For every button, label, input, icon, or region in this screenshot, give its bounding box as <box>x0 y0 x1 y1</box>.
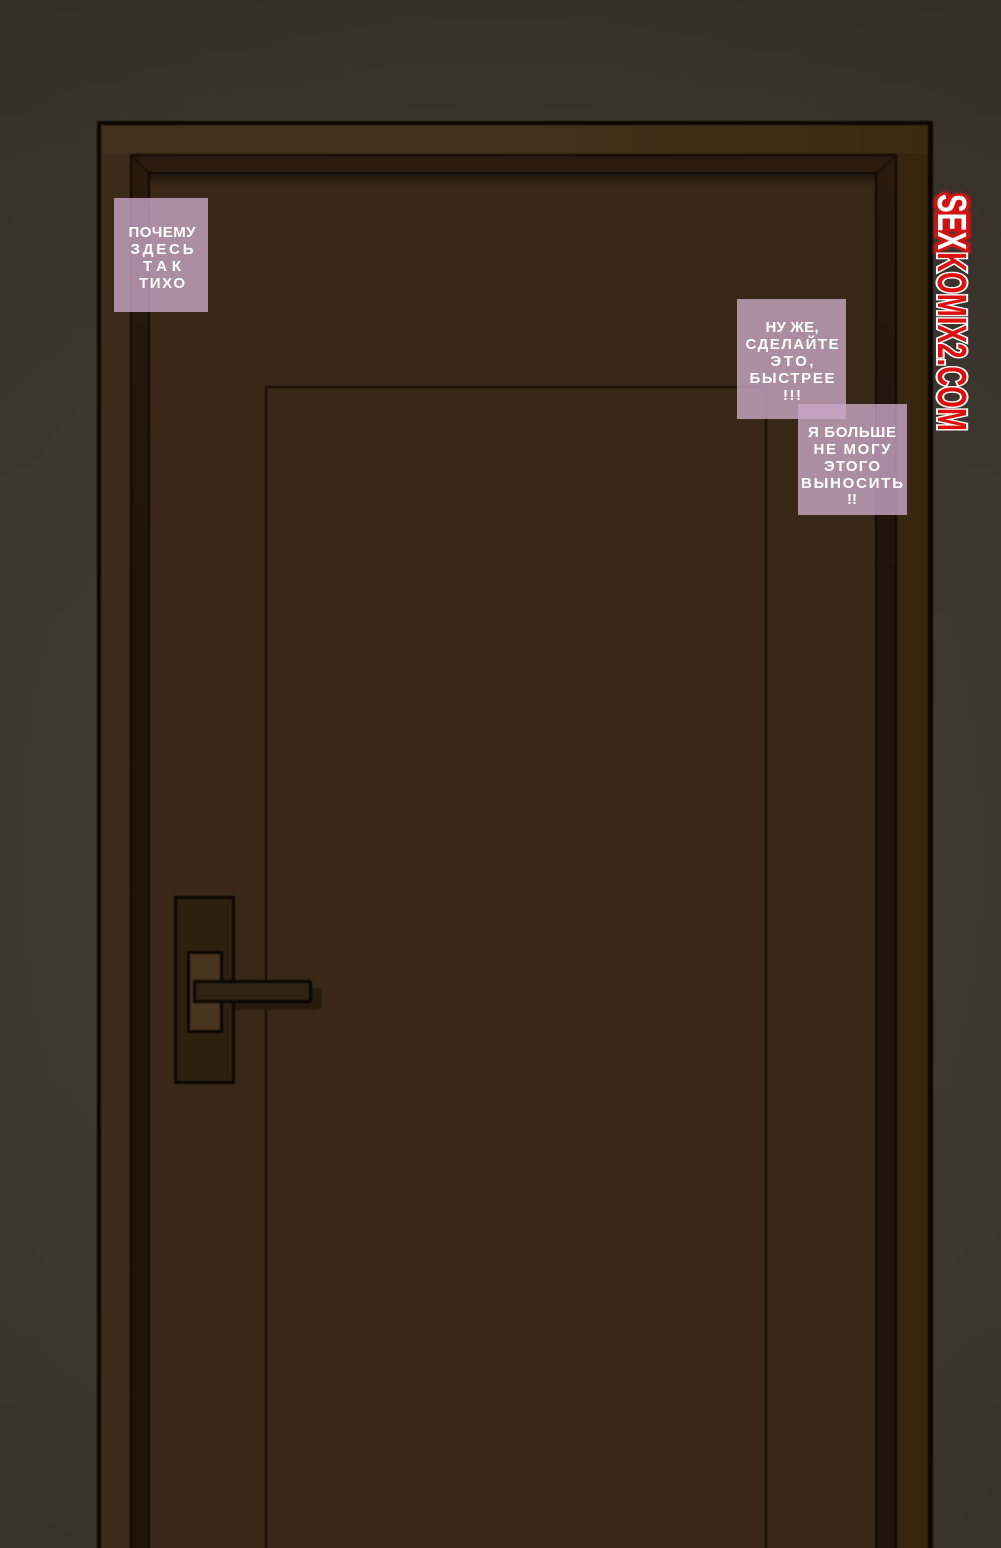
svg-text:SEX: SEX <box>929 194 975 250</box>
svg-text:KOMIX2.COM: KOMIX2.COM <box>929 252 975 431</box>
